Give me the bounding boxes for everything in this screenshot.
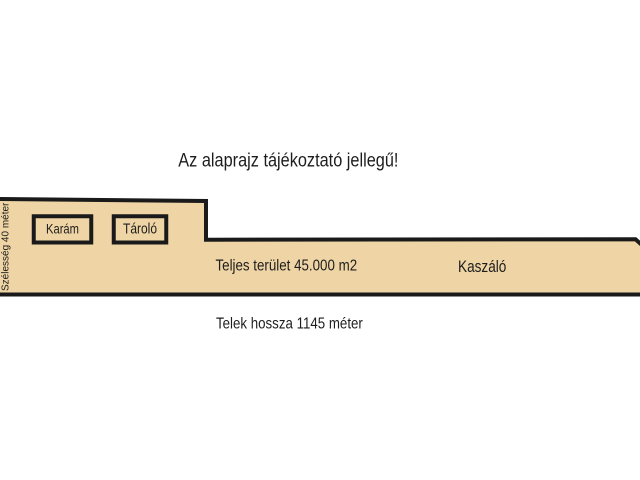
svg-text:Telek hossza 1145 méter: Telek hossza 1145 méter (216, 315, 363, 332)
svg-text:Tároló: Tároló (123, 221, 157, 237)
svg-text:Karám: Karám (46, 222, 79, 237)
svg-text:Az alaprajz tájékoztató jelleg: Az alaprajz tájékoztató jellegű! (178, 149, 398, 171)
svg-text:Szélesség 40 méter: Szélesség 40 méter (1, 202, 12, 291)
svg-text:Teljes terület 45.000 m2: Teljes terület 45.000 m2 (216, 257, 358, 274)
svg-text:Kaszáló: Kaszáló (458, 258, 506, 276)
